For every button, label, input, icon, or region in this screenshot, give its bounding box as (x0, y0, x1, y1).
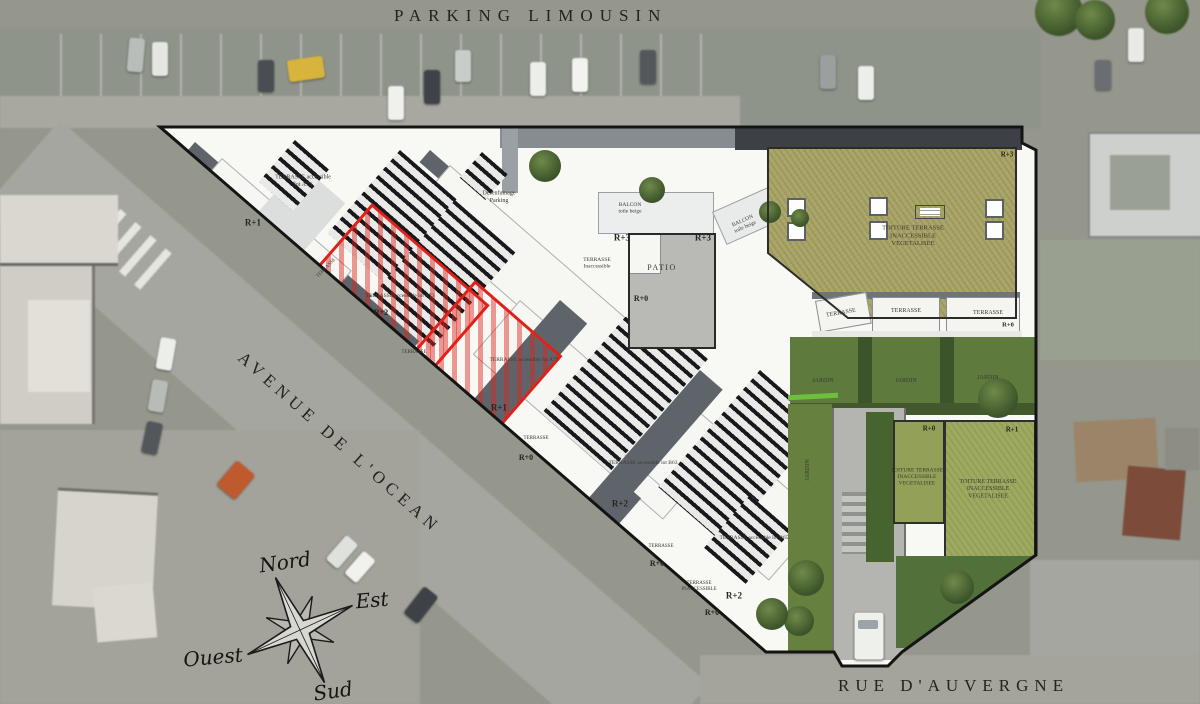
road-top (0, 96, 740, 128)
car (388, 86, 404, 120)
dark-green-strip (866, 412, 894, 562)
tree (788, 560, 824, 596)
roof-band-top-gray (500, 127, 738, 148)
tree (1145, 0, 1189, 34)
plan-label: TOITURE TERRASSE INACCESSIBLE VEGETALISE… (882, 224, 944, 247)
plan-label: TERRASSE accessible lot A73 (490, 357, 559, 364)
shadow-band-top-dark (735, 125, 1022, 150)
plan-label: R+1 (1006, 426, 1019, 434)
tree (791, 209, 809, 227)
tree (639, 177, 665, 203)
plan-label: TERRASSE (891, 307, 921, 314)
plan-label: Désenfumage Parking (483, 190, 516, 204)
car (147, 379, 168, 413)
car (127, 37, 146, 72)
hedge-bush (940, 570, 974, 604)
plan-label: JARDIN (977, 374, 998, 381)
car-windshield (858, 620, 878, 629)
plan-label: PATIO (647, 263, 676, 273)
car (152, 42, 168, 76)
car (1128, 28, 1144, 62)
car (820, 55, 836, 89)
plan-label: R+2 (374, 308, 388, 318)
plan-label: R+0 (923, 425, 936, 433)
plan-label: TOITURE TERRASSE INACCESSIBLE VEGETALISE… (891, 467, 943, 487)
plan-label: TOITURE TERRASSE INACCESSIBLE VEGETALISE… (960, 478, 1017, 500)
plan-label: R+2 (612, 499, 628, 510)
plan-label: R+0 (634, 294, 648, 304)
tree (1075, 0, 1115, 40)
plan-label: TERRASSE Inaccessible (583, 256, 611, 269)
car (424, 70, 440, 104)
tree (759, 201, 781, 223)
roof-access-box (915, 205, 945, 219)
tree (529, 150, 561, 182)
plan-label: JARDIN (812, 377, 833, 384)
plan-label: BALCON toile beige (618, 201, 641, 214)
car (1095, 60, 1111, 90)
plan-label: R+0 (705, 608, 719, 618)
car (858, 66, 874, 100)
roof-gray-right (1165, 428, 1199, 470)
terrace-cell (872, 297, 940, 333)
roof-red (1122, 466, 1186, 541)
site-plan-scene: TERRASSE accessible lot A73Désenfumage P… (0, 0, 1200, 704)
core-strip (502, 127, 518, 193)
garden-bush (978, 378, 1018, 418)
skylight (985, 199, 1004, 218)
plan-label: TERRASSE (973, 309, 1003, 316)
street-label-rue-auvergne: RUE D'AUVERGNE (838, 676, 1069, 696)
building-right-1-court (1110, 155, 1170, 210)
car (640, 50, 656, 84)
compass-label-east: Est (355, 587, 390, 614)
plan-label: TERRASSE (648, 543, 673, 549)
plan-label: R+3 (1001, 151, 1014, 159)
street-label-parking-limousin: PARKING LIMOUSIN (394, 6, 667, 26)
building-left-1 (0, 195, 118, 266)
plan-label: TERRASSE accessible lot B65 (720, 535, 789, 542)
plan-label: R+3 (695, 233, 711, 244)
plan-label: R+1 (245, 218, 261, 229)
plan-label: TERRASSE accessible lot A73 (366, 293, 435, 300)
plan-label: JARDIN (895, 377, 916, 384)
building-left-5 (93, 582, 158, 642)
car (530, 62, 546, 96)
plan-label: TERRASSE accessible lot B63 (609, 460, 678, 467)
car (258, 60, 274, 92)
palm-tree (756, 598, 788, 630)
building-left-3 (28, 300, 90, 392)
tree (784, 606, 814, 636)
plan-label: R+2 (726, 591, 742, 602)
plan-label: R+3 (614, 233, 630, 244)
plan-label: TERRASSE (523, 435, 548, 441)
plan-label: R+0 (650, 559, 664, 569)
skylight (985, 221, 1004, 240)
plan-label: TERRASSE INACCESSIBLE (681, 580, 716, 592)
plan-label: TERRASSE accessible lot A73 (275, 174, 331, 188)
plan-label: JARDIN (804, 459, 811, 480)
skylight (869, 197, 888, 216)
plan-label: TERRASSE (401, 349, 426, 355)
car (455, 50, 471, 82)
car (572, 58, 588, 92)
plan-label: R+0 (519, 453, 533, 463)
yard-right (1040, 240, 1200, 360)
plan-label: R+0 (1002, 321, 1014, 329)
compass-label-south: Sud (312, 676, 354, 704)
plan-label: R+1 (491, 403, 507, 414)
